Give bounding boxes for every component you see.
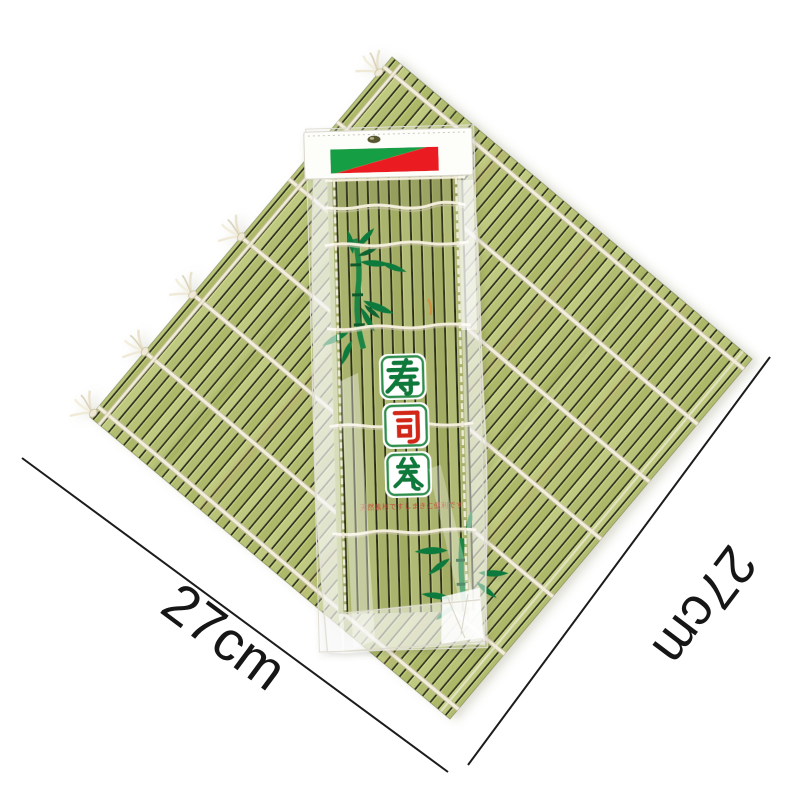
header-card: [304, 128, 473, 179]
sushi-mat-scene: 天然素材ですしまきに便利です: [0, 0, 800, 800]
kanji-tile-2: [382, 402, 430, 449]
product-photo: 天然素材ですしまきに便利です: [0, 0, 800, 800]
title-tiles: [379, 353, 433, 498]
kanji-tile-3: [384, 451, 432, 498]
brand-logo: [330, 147, 439, 174]
kanji-tile-1: [379, 353, 427, 400]
